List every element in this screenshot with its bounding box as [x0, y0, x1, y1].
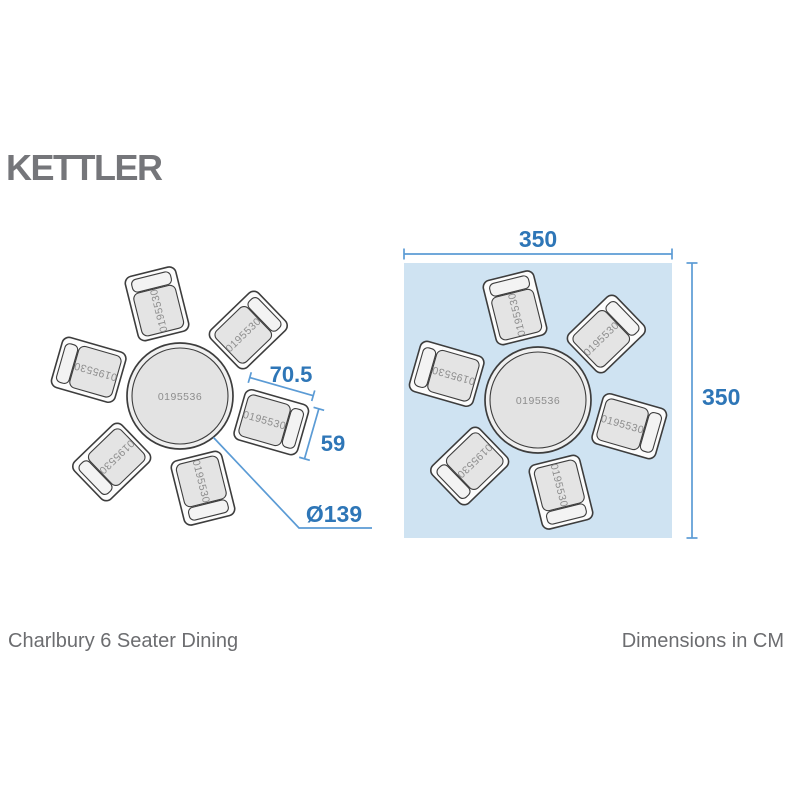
dim-table-diameter-label: Ø139 — [306, 501, 362, 527]
dining-chair: 0195530 — [232, 388, 310, 456]
table-sku-label: 0195536 — [516, 395, 560, 407]
dining-chair: 0195530 — [50, 336, 128, 404]
dim-chair-depth-label: 59 — [321, 431, 345, 456]
plan-view: 0195536 0195530 0195530 — [50, 265, 372, 528]
footprint-view: 350 350 0195536 01955 — [404, 226, 740, 538]
dining-chair: 0195530 — [124, 265, 190, 342]
product-dimension-sheet: KETTLER 350 350 0195536 — [0, 0, 800, 800]
dining-table: 0195536 — [485, 347, 591, 453]
diagram-canvas: 350 350 0195536 01955 — [0, 0, 800, 800]
dining-chair: 0195530 — [170, 450, 236, 527]
dining-table: 0195536 — [127, 343, 233, 449]
dim-footprint-width: 350 — [404, 226, 672, 260]
dim-footprint-height-label: 350 — [702, 384, 740, 410]
dim-footprint-width-label: 350 — [519, 226, 557, 252]
dim-footprint-height: 350 — [687, 263, 741, 538]
dim-chair-width-label: 70.5 — [270, 362, 313, 387]
table-sku-label: 0195536 — [158, 391, 202, 403]
units-note: Dimensions in CM — [622, 629, 784, 653]
product-title: Charlbury 6 Seater Dining — [8, 629, 238, 653]
